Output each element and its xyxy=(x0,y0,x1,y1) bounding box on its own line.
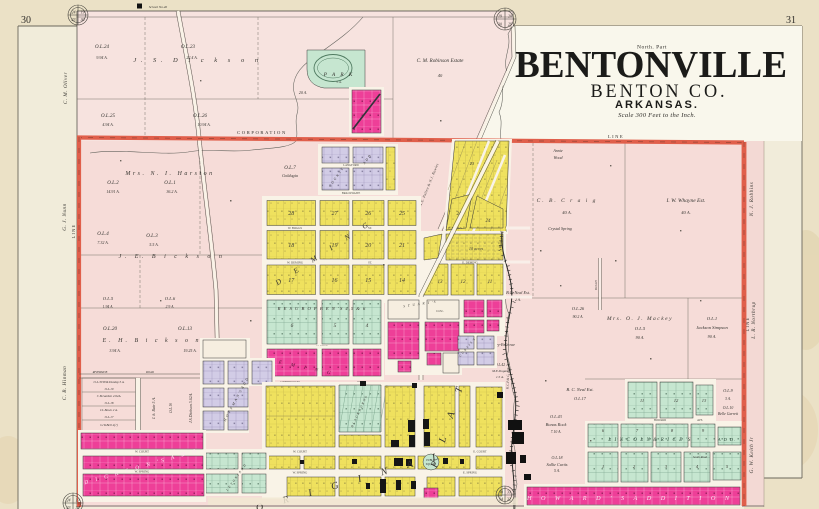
svg-text:P A R K: P A R K xyxy=(323,72,355,78)
svg-text:10.94 A.: 10.94 A. xyxy=(197,122,210,127)
svg-text:W. SPRING: W. SPRING xyxy=(135,470,151,474)
svg-text:1.5 A.: 1.5 A. xyxy=(496,375,504,379)
svg-text:36.2 A.: 36.2 A. xyxy=(166,189,177,194)
svg-text:L I N C O L N & R I C E 'S: L I N C O L N & R I C E 'S xyxy=(607,438,691,443)
svg-text:18: 18 xyxy=(288,243,294,249)
svg-text:10 acres: 10 acres xyxy=(469,246,484,251)
svg-text:5 A.: 5 A. xyxy=(336,80,342,84)
svg-text:Mrs. N. I. Harston: Mrs. N. I. Harston xyxy=(124,171,214,177)
svg-text:O.L.9: O.L.9 xyxy=(723,388,733,393)
svg-text:40 A.: 40 A. xyxy=(562,210,571,215)
svg-text:L. R. Northrup: L. R. Northrup xyxy=(751,301,757,340)
svg-text:7.32 A.: 7.32 A. xyxy=(97,240,108,245)
svg-text:5.5 A.: 5.5 A. xyxy=(149,242,158,247)
svg-text:24: 24 xyxy=(72,10,76,15)
svg-text:E. DEMING: E. DEMING xyxy=(462,261,478,265)
svg-text:20: 20 xyxy=(365,243,371,249)
svg-text:O.L.5: O.L.5 xyxy=(103,296,114,301)
svg-text:90 A.: 90 A. xyxy=(636,335,645,340)
svg-text:90.2 A.: 90.2 A. xyxy=(573,315,584,319)
svg-text:W. SPRING: W. SPRING xyxy=(293,471,309,475)
svg-text:31: 31 xyxy=(786,15,796,26)
svg-text:South Road: South Road xyxy=(693,455,707,459)
svg-text:LINE: LINE xyxy=(608,134,624,139)
svg-text:21: 21 xyxy=(399,243,405,249)
svg-text:BENTONVILLE: BENTONVILLE xyxy=(515,44,787,86)
svg-text:O.L.25: O.L.25 xyxy=(101,114,115,119)
svg-text:27: 27 xyxy=(332,211,339,217)
svg-text:3.94 A.: 3.94 A. xyxy=(109,348,120,353)
svg-text:I. h. Bair 5 A.: I. h. Bair 5 A. xyxy=(151,397,156,420)
svg-text:20 A.: 20 A. xyxy=(299,90,307,95)
svg-text:Sallie Curtis: Sallie Curtis xyxy=(546,462,567,467)
svg-text:J.S.Dickson 5.62A.: J.S.Dickson 5.62A. xyxy=(188,393,193,423)
svg-text:O.L.18: O.L.18 xyxy=(105,401,114,405)
svg-text:AVE.: AVE. xyxy=(697,419,703,422)
svg-text:O.L.3: O.L.3 xyxy=(146,234,158,239)
svg-text:30: 30 xyxy=(21,15,31,26)
svg-text:O.L.20: O.L.20 xyxy=(103,327,117,332)
svg-text:5 A.: 5 A. xyxy=(554,469,560,473)
svg-text:23: 23 xyxy=(72,17,76,22)
svg-text:O.L.2: O.L.2 xyxy=(107,181,119,186)
svg-text:1.94 A.: 1.94 A. xyxy=(103,305,114,309)
svg-text:I. W. Whayne Est.: I. W. Whayne Est. xyxy=(666,198,706,204)
svg-text:30: 30 xyxy=(76,505,80,509)
svg-text:29: 29 xyxy=(508,22,512,27)
svg-text:RIVERSIDE: RIVERSIDE xyxy=(92,370,108,374)
svg-text:E. H. B i c k s o n: E. H. B i c k s o n xyxy=(102,338,202,344)
svg-text:HOWARD: HOWARD xyxy=(654,419,666,422)
svg-text:G. J. Nunn: G. J. Nunn xyxy=(62,203,68,230)
svg-text:B. C. Neal Est.: B. C. Neal Est. xyxy=(566,387,593,392)
svg-text:ARKANSAS.: ARKANSAS. xyxy=(615,99,699,111)
svg-text:O.L.24: O.L.24 xyxy=(95,45,109,50)
svg-text:28: 28 xyxy=(288,211,294,217)
svg-text:24: 24 xyxy=(486,219,492,224)
svg-text:19: 19 xyxy=(81,10,85,15)
svg-text:2 A.: 2 A. xyxy=(515,298,521,302)
svg-text:23: 23 xyxy=(67,505,71,509)
svg-text:1: 1 xyxy=(602,464,604,469)
svg-text:O.L.17: O.L.17 xyxy=(574,396,587,401)
svg-text:14.91 A.: 14.91 A. xyxy=(106,189,119,194)
svg-text:12: 12 xyxy=(461,280,467,285)
svg-text:BRACKWAITE: BRACKWAITE xyxy=(342,192,361,195)
svg-text:Wood: Wood xyxy=(554,155,564,160)
svg-text:J. S. D i c k s o n: J. S. D i c k s o n xyxy=(133,57,262,64)
svg-text:23: 23 xyxy=(470,161,475,166)
svg-text:40 A.: 40 A. xyxy=(681,210,690,215)
svg-text:19.25 A.: 19.25 A. xyxy=(183,348,196,353)
svg-text:31: 31 xyxy=(507,490,511,495)
svg-text:16: 16 xyxy=(332,278,338,284)
svg-text:15: 15 xyxy=(365,278,371,284)
svg-text:J. E. B i c k s o n: J. E. B i c k s o n xyxy=(119,254,226,260)
svg-text:C.B.Garden 2.62A.: C.B.Garden 2.62A. xyxy=(97,394,122,398)
svg-text:11: 11 xyxy=(640,398,644,403)
svg-text:W. DEMING: W. DEMING xyxy=(287,261,304,265)
svg-text:4: 4 xyxy=(366,322,369,329)
svg-text:W. COURT: W. COURT xyxy=(293,450,307,454)
svg-text:12: 12 xyxy=(674,398,679,403)
svg-text:24: 24 xyxy=(67,498,71,503)
svg-text:LINE: LINE xyxy=(71,224,76,239)
svg-text:LANGFORD: LANGFORD xyxy=(343,164,358,167)
svg-text:32: 32 xyxy=(507,497,511,502)
svg-text:Mrs. O. J. Mackey: Mrs. O. J. Mackey xyxy=(606,316,673,322)
svg-text:Annie: Annie xyxy=(552,148,563,153)
svg-text:Crystal Spring: Crystal Spring xyxy=(548,226,571,231)
svg-text:20: 20 xyxy=(508,14,512,19)
svg-text:O.L.17: O.L.17 xyxy=(105,415,114,419)
svg-text:5: 5 xyxy=(334,323,337,329)
svg-text:O.L.26: O.L.26 xyxy=(193,114,207,119)
svg-text:O.L.23: O.L.23 xyxy=(181,45,195,50)
svg-text:40: 40 xyxy=(438,73,443,78)
svg-text:G. W. Keith Jr: G. W. Keith Jr xyxy=(749,436,755,473)
svg-text:O.L.5: O.L.5 xyxy=(635,326,646,331)
svg-text:C. M. Robinson Estate: C. M. Robinson Estate xyxy=(417,58,465,64)
svg-text:O.L.13: O.L.13 xyxy=(178,327,192,332)
svg-text:O.L.26: O.L.26 xyxy=(572,306,585,311)
svg-text:C. B. C r a i g: C. B. C r a i g xyxy=(537,198,598,204)
svg-text:Belle Garrett: Belle Garrett xyxy=(718,412,739,416)
svg-text:O.L.1: O.L.1 xyxy=(164,181,175,186)
svg-text:O.L.6: O.L.6 xyxy=(165,296,176,301)
svg-text:Bonas Rock: Bonas Rock xyxy=(546,422,568,427)
svg-text:O.T.L.: O.T.L. xyxy=(436,309,444,313)
svg-text:ROAD: ROAD xyxy=(145,370,155,374)
svg-text:Jackson Simpson: Jackson Simpson xyxy=(696,325,728,330)
svg-text:O.L.10: O.L.10 xyxy=(723,406,734,410)
svg-text:30: 30 xyxy=(81,17,85,22)
svg-text:A D D.: A D D. xyxy=(717,437,736,442)
svg-text:30: 30 xyxy=(499,490,503,495)
svg-text:34: 34 xyxy=(499,497,503,502)
svg-text:Scale 300 Feet to the Inch.: Scale 300 Feet to the Inch. xyxy=(618,112,696,119)
svg-text:B.C. Neal Est.: B.C. Neal Est. xyxy=(506,290,530,295)
svg-text:CORPORATION: CORPORATION xyxy=(237,130,287,135)
svg-text:7.10 A.: 7.10 A. xyxy=(551,430,562,434)
svg-text:C. M. Oliver: C. M. Oliver xyxy=(63,71,69,104)
svg-text:N. J. Robbins: N. J. Robbins xyxy=(749,182,755,217)
svg-text:E. SPRING: E. SPRING xyxy=(463,471,478,475)
svg-text:13: 13 xyxy=(438,280,444,285)
svg-text:25: 25 xyxy=(399,211,405,217)
svg-text:O.L.1: O.L.1 xyxy=(707,316,717,321)
svg-text:ST.: ST. xyxy=(368,226,372,230)
svg-text:9.94 A.: 9.94 A. xyxy=(96,55,107,60)
svg-text:19: 19 xyxy=(498,14,502,19)
svg-text:6: 6 xyxy=(291,323,294,329)
svg-text:3 A.: 3 A. xyxy=(725,397,731,401)
svg-text:13: 13 xyxy=(702,398,707,403)
svg-text:2.9 A.: 2.9 A. xyxy=(166,305,175,309)
svg-text:ROAD: ROAD xyxy=(594,280,598,291)
svg-text:ST.: ST. xyxy=(368,261,372,265)
svg-text:O.L.19: O.L.19 xyxy=(105,387,114,391)
svg-text:W. BOGGS: W. BOGGS xyxy=(288,226,303,230)
svg-text:C. B. Hinman: C. B. Hinman xyxy=(62,366,68,401)
svg-text:14: 14 xyxy=(399,277,405,284)
svg-text:G.W.Bell 4(?): G.W.Bell 4(?) xyxy=(100,423,118,427)
svg-text:H O W A R D ' S A D D I T: H O W A R D ' S A D D I T I O N xyxy=(526,495,733,502)
svg-text:O.L.43: O.L.43 xyxy=(550,414,562,419)
svg-text:19: 19 xyxy=(76,498,80,503)
svg-text:26: 26 xyxy=(365,211,371,217)
svg-text:4.94 A.: 4.94 A. xyxy=(102,122,113,127)
svg-text:I.L.Bown 2 A.: I.L.Bown 2 A. xyxy=(99,408,118,412)
svg-text:90 A.: 90 A. xyxy=(708,334,717,339)
svg-text:E. COURT: E. COURT xyxy=(473,450,486,454)
svg-text:30: 30 xyxy=(498,22,502,27)
svg-text:Goldugia: Goldugia xyxy=(282,173,298,178)
svg-text:O.L.30 H.R.Dunlap 3 A.: O.L.30 H.R.Dunlap 3 A. xyxy=(94,380,125,384)
svg-text:School No.46: School No.46 xyxy=(149,5,168,9)
svg-text:O.L.7: O.L.7 xyxy=(284,166,296,171)
svg-text:O.L.16: O.L.16 xyxy=(169,403,173,413)
svg-text:O.L.4: O.L.4 xyxy=(97,232,109,237)
svg-text:O.L.18: O.L.18 xyxy=(551,455,562,460)
svg-text:11: 11 xyxy=(488,280,493,285)
svg-text:W. COURT: W. COURT xyxy=(135,450,149,454)
